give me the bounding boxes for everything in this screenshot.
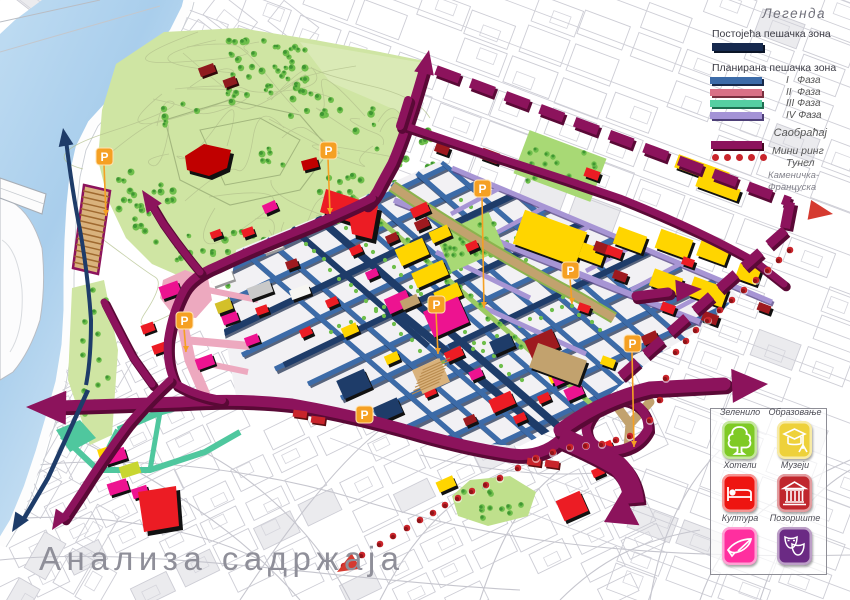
svg-text:P: P (432, 298, 440, 312)
svg-text:P: P (478, 182, 486, 196)
svg-text:P: P (628, 337, 636, 351)
svg-text:P: P (100, 150, 108, 164)
svg-text:P: P (324, 144, 332, 158)
svg-text:P: P (180, 314, 188, 328)
svg-text:P: P (566, 264, 574, 278)
svg-text:P: P (360, 408, 368, 422)
